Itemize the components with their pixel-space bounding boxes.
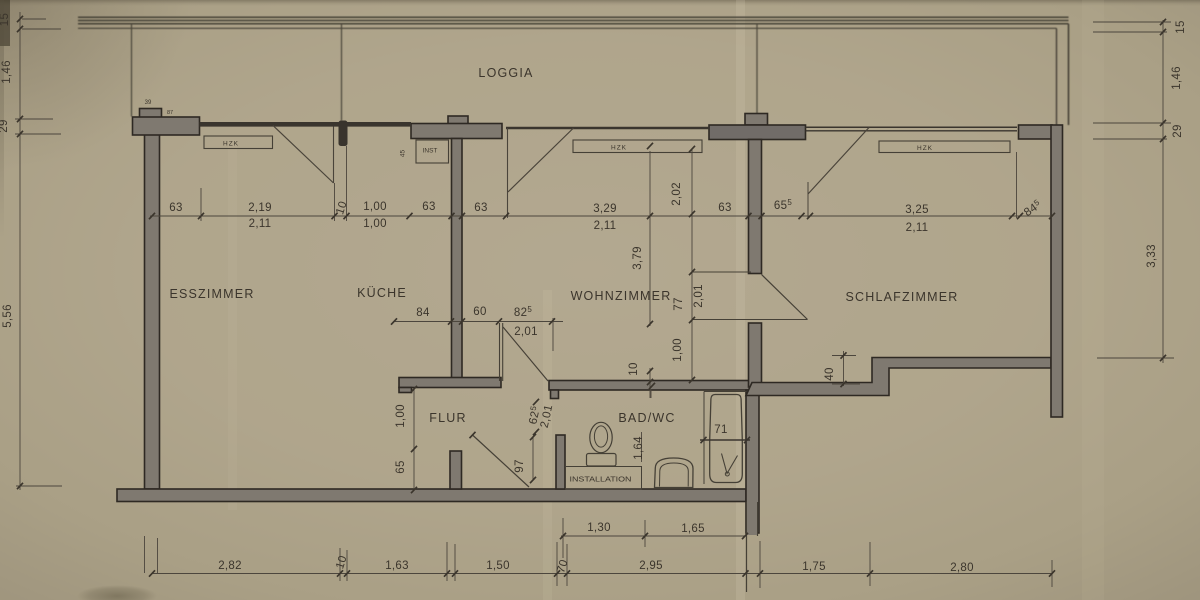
svg-text:HZK: HZK bbox=[917, 145, 933, 152]
svg-text:HZK: HZK bbox=[223, 141, 239, 148]
svg-text:65: 65 bbox=[395, 460, 407, 473]
svg-text:LOGGIA: LOGGIA bbox=[478, 66, 533, 80]
svg-text:1,46: 1,46 bbox=[1171, 66, 1183, 90]
svg-text:2,01: 2,01 bbox=[693, 284, 705, 308]
svg-text:77: 77 bbox=[673, 297, 685, 310]
svg-text:15: 15 bbox=[1175, 20, 1187, 33]
svg-text:2,02: 2,02 bbox=[671, 182, 683, 206]
svg-text:2,11: 2,11 bbox=[249, 218, 272, 230]
svg-text:1,00: 1,00 bbox=[363, 201, 387, 213]
svg-text:2,11: 2,11 bbox=[594, 220, 617, 232]
svg-text:3,25: 3,25 bbox=[905, 204, 929, 216]
svg-text:1,30: 1,30 bbox=[587, 522, 611, 534]
svg-text:45: 45 bbox=[400, 150, 407, 158]
svg-text:1,46: 1,46 bbox=[1, 60, 13, 84]
svg-text:3,33: 3,33 bbox=[1146, 244, 1158, 268]
svg-text:97: 97 bbox=[514, 459, 526, 472]
svg-text:1,63: 1,63 bbox=[385, 560, 409, 572]
svg-text:1,50: 1,50 bbox=[486, 560, 510, 572]
svg-text:INST: INST bbox=[423, 148, 438, 155]
svg-text:1,65: 1,65 bbox=[681, 523, 705, 535]
svg-text:WOHNZIMMER: WOHNZIMMER bbox=[571, 289, 672, 303]
svg-text:29: 29 bbox=[1172, 124, 1184, 137]
svg-text:2,95: 2,95 bbox=[639, 560, 663, 572]
svg-text:5,56: 5,56 bbox=[2, 304, 14, 328]
svg-text:60: 60 bbox=[473, 306, 486, 318]
svg-text:63: 63 bbox=[718, 202, 731, 214]
svg-text:2,19: 2,19 bbox=[248, 202, 272, 214]
svg-text:1,64: 1,64 bbox=[633, 436, 645, 460]
svg-text:1,75: 1,75 bbox=[802, 561, 826, 573]
svg-text:KÜCHE: KÜCHE bbox=[357, 286, 407, 300]
svg-text:87: 87 bbox=[167, 110, 173, 116]
svg-text:3,79: 3,79 bbox=[632, 246, 644, 270]
svg-text:2,11: 2,11 bbox=[906, 222, 929, 234]
svg-text:2,80: 2,80 bbox=[950, 562, 974, 574]
svg-text:1,00: 1,00 bbox=[395, 404, 407, 428]
svg-text:1,00: 1,00 bbox=[672, 338, 684, 362]
svg-text:15: 15 bbox=[0, 13, 11, 26]
svg-text:29: 29 bbox=[0, 119, 10, 132]
svg-text:2,01: 2,01 bbox=[514, 326, 538, 338]
svg-text:71: 71 bbox=[714, 424, 727, 436]
svg-text:SCHLAFZIMMER: SCHLAFZIMMER bbox=[845, 290, 958, 304]
svg-text:39: 39 bbox=[145, 100, 152, 106]
svg-text:1,00: 1,00 bbox=[363, 218, 387, 230]
svg-text:10: 10 bbox=[628, 362, 640, 375]
svg-text:HZK: HZK bbox=[611, 145, 627, 152]
svg-text:FLUR: FLUR bbox=[429, 411, 466, 425]
svg-text:63: 63 bbox=[169, 202, 182, 214]
svg-text:40: 40 bbox=[824, 367, 836, 380]
svg-text:ESSZIMMER: ESSZIMMER bbox=[169, 287, 254, 301]
svg-text:INSTALLATION: INSTALLATION bbox=[570, 477, 632, 484]
svg-text:BAD/WC: BAD/WC bbox=[618, 411, 675, 425]
svg-text:63: 63 bbox=[422, 201, 435, 213]
svg-text:84: 84 bbox=[416, 307, 430, 319]
svg-text:63: 63 bbox=[474, 202, 487, 214]
svg-text:2,82: 2,82 bbox=[218, 560, 242, 572]
svg-text:3,29: 3,29 bbox=[593, 203, 617, 215]
